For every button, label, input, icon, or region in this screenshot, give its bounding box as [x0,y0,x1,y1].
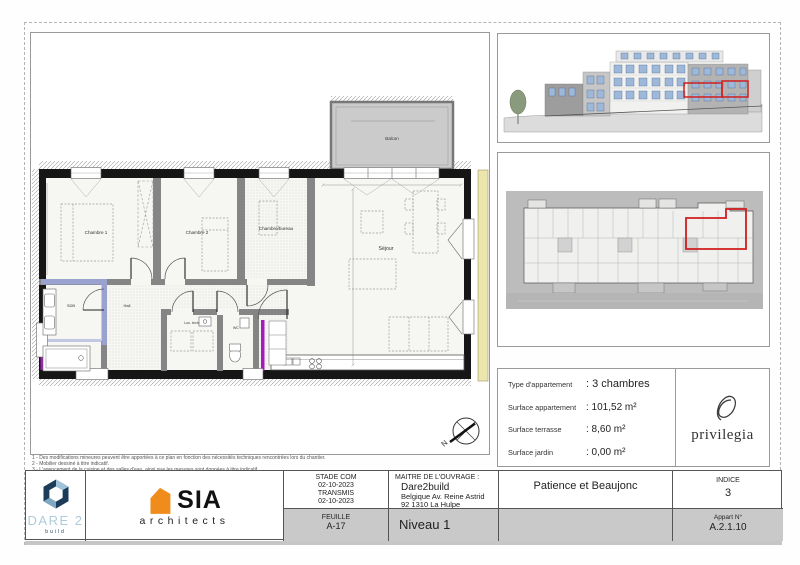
sia-wordmark: SIA [177,486,222,515]
info-row-surface-appartement: Surface appartement : 101,52 m² [508,402,668,413]
indice-value: 3 [673,487,783,499]
adjacent-unit-strip [478,170,488,381]
sia-logo-cell: SIA architects [86,471,284,541]
room-label-bureau: Chambre/bureau [259,226,294,231]
title-block-bottom-strip [25,541,782,545]
transmis-label: TRANSMIS [284,490,388,498]
dare2build-logo-cell: DARE 2 build [26,471,86,541]
stade-cell: STADE COM 02-10-2023 TRANSMIS 02-10-2023 [284,471,389,509]
floor-plan-panel: Chambre 1 Chambre 2 Chambre/bureau Séjou… [30,32,490,455]
feuille-cell: FEUILLE A-17 [284,509,389,541]
info-value: : 0,00 m² [586,447,625,458]
transmis-date: 02-10-2023 [284,498,388,506]
elevation-drawing [498,34,767,140]
kitchen-counter [271,355,464,370]
compass-north-label: N [439,438,449,448]
info-value: : 3 chambres [586,378,650,390]
feuille-value: A-17 [284,522,388,531]
room-label-balcon: Balcon [385,136,399,141]
tree [510,90,526,114]
info-value: : 101,52 m² [586,402,637,413]
info-row-surface-terrasse: Surface terrasse : 8,60 m² [508,424,668,435]
appart-cell: Appart N° A.2.1.10 [673,509,783,541]
client-address: Belgique Av. Reine Astrid 92 1310 La Hul… [401,493,492,509]
info-value: : 8,60 m² [586,424,625,435]
drawing-sheet: Chambre 1 Chambre 2 Chambre/bureau Séjou… [0,0,800,565]
balcony [331,96,453,169]
dare2build-icon [39,477,73,511]
room-label-chambre2: Chambre 2 [186,230,209,235]
room-label-chambre1: Chambre 1 [85,230,108,235]
key-plan-panel [497,152,770,347]
north-compass-icon: N [439,418,479,448]
room-label-hall: Hall [124,303,131,308]
dare2-wordmark: DARE 2 [28,513,84,528]
indice-label: INDICE [673,475,783,487]
dare2-sub: build [45,529,66,535]
indice-cell: INDICE 3 [673,471,783,509]
info-row-type: Type d'appartement : 3 chambres [508,378,668,390]
niveau-cell: Niveau 1 [389,509,499,541]
appart-number: A.2.1.10 [673,523,783,533]
project-name-cell: Patience et Beaujonc [499,471,673,509]
empty-gray-cell [499,509,673,541]
stade-date: 02-10-2023 [284,482,388,490]
info-label: Surface jardin [508,448,586,457]
stade-label: STADE COM [284,474,388,482]
floor-plan-drawing: Chambre 1 Chambre 2 Chambre/bureau Séjou… [31,33,489,454]
maitre-label: MAITRE DE L'OUVRAGE : [395,474,492,482]
sia-icon [147,485,173,515]
title-block: STADE COM 02-10-2023 TRANSMIS 02-10-2023… [25,470,782,540]
info-label: Type d'appartement [508,380,586,389]
privilegia-wordmark: privilegia [691,427,753,444]
client-name: Dare2build [401,484,492,492]
info-label: Surface appartement [508,403,586,412]
room-label-wc: WC [233,326,239,330]
info-label: Surface terrasse [508,425,586,434]
key-plan-drawing [498,153,767,344]
apartment-info-panel: Type d'appartement : 3 chambres Surface … [497,368,677,467]
maitre-ouvrage-cell: MAITRE DE L'OUVRAGE : Dare2build Belgiqu… [389,471,499,509]
room-label-sdb: SDB [67,303,76,308]
privilegia-icon [701,392,745,426]
room-label-sejour: Séjour [379,246,394,252]
sia-sub: architects [140,515,230,527]
room-label-loctech: Loc. tech. [184,321,200,325]
elevation-panel [497,33,770,143]
privilegia-logo-panel: privilegia [675,368,770,467]
info-row-surface-jardin: Surface jardin : 0,00 m² [508,447,668,458]
